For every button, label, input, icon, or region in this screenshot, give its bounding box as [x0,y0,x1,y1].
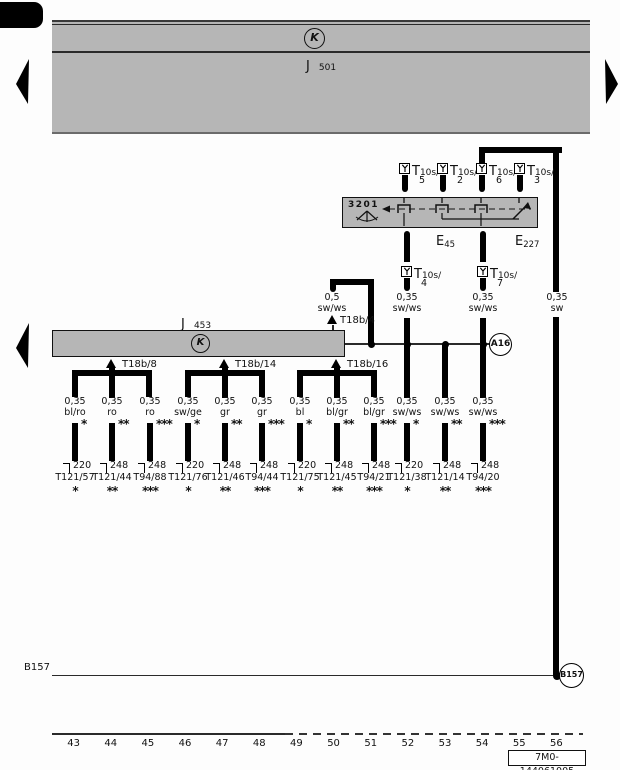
track-number: 51 [352,738,389,749]
footnote-marker: *** [475,486,491,496]
connector-label-t18b4: T18b/4 [340,315,375,326]
footnote-marker: * [404,486,409,496]
diagram-part-number: 7M0-144061005 [508,750,586,766]
terminal-number: 248 [223,461,241,471]
wire [404,423,410,461]
wire-size-label: 0,35 [396,397,417,407]
wire-color-label: ro [145,408,155,418]
terminal-name: T121/45 [317,473,356,483]
wire-sw-lower [553,317,559,675]
terminal-name: T94/20 [466,473,499,483]
wire-bend-horizontal [479,147,562,153]
wire-color-label: bl/ro [64,408,85,418]
prev-page-arrow-icon[interactable] [16,59,29,108]
switch-unit-3201: 3201 [342,197,538,228]
footnote-marker: * [72,486,77,496]
prev-page-arrow-icon[interactable] [16,323,29,372]
relay-contact-symbol: K [191,334,210,353]
connector-pin: 3 [534,176,540,186]
terminal-number: 220 [405,461,423,471]
terminal-number: 248 [443,461,461,471]
footnote-marker: ** [231,419,242,429]
terminal-name: T121/14 [425,473,464,483]
wire-size-label: 0,35 [546,293,567,303]
footnote-marker: ** [343,419,354,429]
track-number: 44 [92,738,129,749]
connector-arrow-icon [219,359,229,368]
wire-color-label: sw/ws [393,304,422,314]
wire-color-label: sw/ge [174,408,202,418]
branch-label: T18b/8 [122,359,157,370]
wire [442,344,448,398]
wire-color-label: bl/gr [363,408,385,418]
wire [330,285,336,292]
footnote-marker: ** [451,419,462,429]
component-label-e45: E45 [436,230,455,249]
junction-line [345,343,490,345]
relay-contact-symbol: K [304,28,325,49]
wire-size-label: 0,35 [64,397,85,407]
footnote-marker: *** [254,486,270,496]
terminal-number: 248 [481,461,499,471]
wire-color-label: gr [257,408,267,418]
connector-pin: 7 [497,279,503,289]
wire [109,423,115,461]
wire-size-label: 0,35 [472,397,493,407]
plug-icon [401,266,412,277]
connector-pin: 4 [421,279,427,289]
wire [440,175,446,192]
page-tab [0,2,43,28]
wire [147,423,153,461]
footnote-marker: *** [268,419,284,429]
footnote-marker: * [297,486,302,496]
wire [404,231,410,262]
footnote-marker: * [185,486,190,496]
track-number: 46 [166,738,203,749]
footnote-marker: ** [220,486,231,496]
wire [185,423,191,461]
terminal-number: 248 [110,461,128,471]
wire-color-label: sw [551,304,564,314]
node-a16: A16 [489,333,512,356]
ground-label-b157: B157 [24,662,50,673]
wire-size-label: 0,35 [139,397,160,407]
wire-branch-left [185,370,222,397]
terminal-name: T121/76 [168,473,207,483]
terminal-number: 220 [186,461,204,471]
wire [371,423,377,461]
component-number: 501 [319,63,336,73]
wire-size-label: 0,35 [251,397,272,407]
connector-arrow-icon [331,359,341,368]
junction-dot [480,341,487,348]
footnote-marker: *** [489,419,505,429]
wire [222,423,228,461]
plug-icon [476,163,487,174]
branch-label: T18b/14 [235,359,276,370]
wire [402,175,408,192]
junction-dot [404,341,411,348]
footnote-marker: *** [380,419,396,429]
component-j453-band: K [52,330,345,357]
wire [479,150,485,163]
wire-branch-right [115,370,152,397]
wire-size-label: 0,35 [396,293,417,303]
wire [334,423,340,461]
terminal-number: 220 [298,461,316,471]
terminal-name: T94/21 [357,473,390,483]
wire-branch-left [72,370,109,397]
track-number: 54 [464,738,501,749]
wire-color-label: sw/ws [469,304,498,314]
terminal-number: 248 [335,461,353,471]
footnote-marker: *** [366,486,382,496]
footnote-marker: * [306,419,311,429]
wire [480,423,486,461]
node-b157: B157 [559,663,584,688]
wire-color-label: sw/ws [431,408,460,418]
terminal-number: 248 [260,461,278,471]
track-number: 53 [426,738,463,749]
footnote-marker: *** [156,419,172,429]
wire [297,423,303,461]
component-letter: J [306,59,310,74]
track-number: 55 [501,738,538,749]
connector-pin: 6 [496,176,502,186]
connector-arrow-icon [106,359,116,368]
track-number: 47 [204,738,241,749]
component-j501-band: K J 501 [52,20,590,134]
terminal-number: 248 [372,461,390,471]
terminal-number: 248 [148,461,166,471]
footnote-marker: ** [332,486,343,496]
wire-size-label: 0,35 [177,397,198,407]
branch-label: T18b/16 [347,359,388,370]
footnote-marker: *** [142,486,158,496]
terminal-name: T121/57 [55,473,94,483]
wire-color-label: bl/gr [326,408,348,418]
wire [404,318,410,398]
track-number: 50 [315,738,352,749]
component-label-j501: J 501 [52,55,590,74]
wire-branch-right [340,370,377,397]
wiring-diagram-page: K J 501 0,35 sw T10s/ 5 T10s/ 2 T10s/ 6 [0,0,620,770]
wire [479,175,485,192]
wire [259,423,265,461]
terminal-name: T94/44 [245,473,278,483]
track-ruler-dashed [285,733,583,735]
terminal-name: T121/46 [205,473,244,483]
wire [480,318,486,398]
wire [72,423,78,461]
plug-icon [399,163,410,174]
track-number: 52 [389,738,426,749]
component-label-e227: E227 [515,230,539,249]
wire-size-label: 0,35 [326,397,347,407]
footnote-marker: * [194,419,199,429]
footnote-marker: ** [118,419,129,429]
junction-dot [368,341,375,348]
wire-size-label: 0,35 [289,397,310,407]
band-divider-line [52,51,590,53]
band-inner-line [52,24,590,25]
next-page-arrow-icon[interactable] [605,59,618,108]
wire-size-label: 0,35 [101,397,122,407]
wire-branch-left [297,370,334,397]
plug-icon [477,266,488,277]
terminal-name: T121/38 [387,473,426,483]
wire [404,278,410,291]
junction-dot [442,341,449,348]
connector-pin: 5 [419,176,425,186]
track-number-row: 43 44 45 46 47 48 49 50 51 52 53 54 55 5… [55,738,575,749]
wire-color-label: ro [107,408,117,418]
plug-icon [514,163,525,174]
terminal-name: T121/44 [92,473,131,483]
wire-size-label: 0,35 [214,397,235,407]
wire-size-label: 0,5 [324,293,339,303]
wire-size-label: 0,35 [434,397,455,407]
plug-icon [437,163,448,174]
wire [368,285,374,343]
wire-color-label: gr [220,408,230,418]
terminal-number: 220 [73,461,91,471]
track-number: 45 [129,738,166,749]
wire-size-label: 0,35 [363,397,384,407]
track-number: 56 [538,738,575,749]
wire [442,423,448,461]
footnote-marker: ** [107,486,118,496]
ground-line [52,675,556,677]
unit-id-label: 3201 [348,200,379,210]
wire [480,231,486,262]
track-number: 49 [278,738,315,749]
wire-branch-right [228,370,265,397]
track-number: 48 [241,738,278,749]
connector-arrow-icon [327,315,337,324]
wire-color-label: sw/ws [393,408,422,418]
wire-color-label: bl [296,408,305,418]
terminal-name: T121/75 [280,473,319,483]
wire-color-label: sw/ws [318,304,347,314]
wire [480,278,486,291]
connector-pin: 2 [457,176,463,186]
track-ruler-solid [52,733,285,735]
wire [517,175,523,192]
footnote-marker: * [81,419,86,429]
track-number: 43 [55,738,92,749]
terminal-name: T94/88 [133,473,166,483]
wire-size-label: 0,35 [472,293,493,303]
footnote-marker: * [413,419,418,429]
footnote-marker: ** [440,486,451,496]
wire-color-label: sw/ws [469,408,498,418]
